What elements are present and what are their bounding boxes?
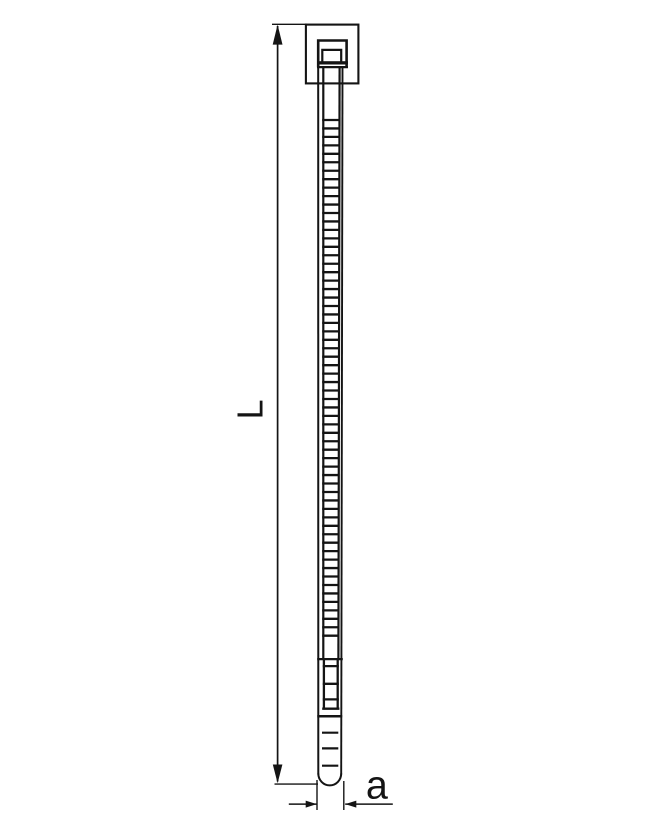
svg-text:a: a [366,764,388,808]
svg-text:L: L [230,399,271,419]
